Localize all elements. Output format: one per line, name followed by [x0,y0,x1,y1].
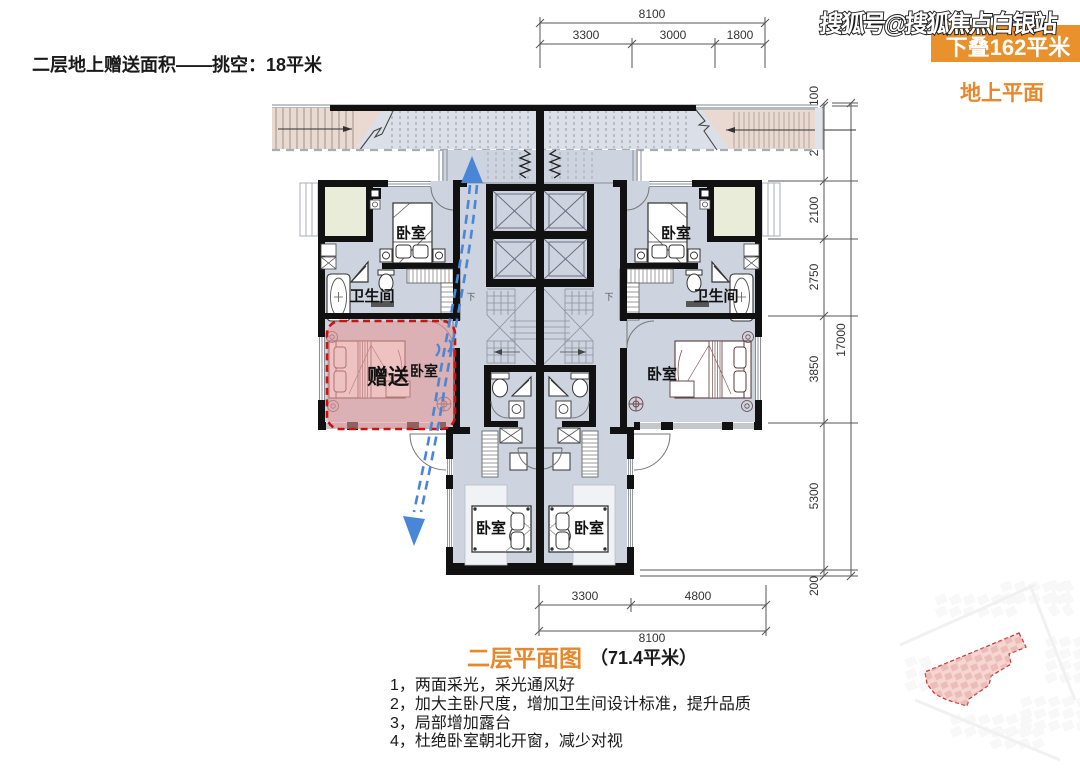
svg-text:地上平面: 地上平面 [960,81,1044,105]
svg-text:卧室: 卧室 [410,363,438,379]
svg-text:二层平面图: 二层平面图 [467,645,582,671]
svg-text:8100: 8100 [639,631,666,645]
svg-text:（71.4平米）: （71.4平米） [590,647,697,668]
svg-text:卫生间: 卫生间 [693,287,738,305]
svg-text:200: 200 [807,576,821,596]
svg-text:5300: 5300 [807,482,821,509]
svg-text:100: 100 [807,86,821,106]
svg-text:卧室: 卧室 [661,224,691,242]
svg-text:下: 下 [466,292,475,302]
svg-text:1，两面采光，采光通风好: 1，两面采光，采光通风好 [390,676,575,694]
svg-text:3300: 3300 [572,589,599,603]
svg-text:3，局部增加露台: 3，局部增加露台 [390,714,511,732]
svg-text:4800: 4800 [685,589,712,603]
svg-text:3300: 3300 [573,28,600,42]
svg-text:1800: 1800 [727,28,754,42]
svg-text:4，杜绝卧室朝北开窗，减少对视: 4，杜绝卧室朝北开窗，减少对视 [390,732,623,750]
svg-text:搜狐号@搜狐焦点白银站: 搜狐号@搜狐焦点白银站 [819,10,1059,38]
svg-text:下叠162平米: 下叠162平米 [946,35,1072,60]
svg-text:3000: 3000 [660,28,687,42]
svg-text:卫生间: 卫生间 [349,287,394,305]
svg-text:二层地上赠送面积——挑空：18平米: 二层地上赠送面积——挑空：18平米 [32,54,323,75]
svg-text:卧室: 卧室 [476,519,506,537]
svg-text:17000: 17000 [834,323,848,357]
svg-text:2，加大主卧尺度，增加卫生间设计标准，提升品质: 2，加大主卧尺度，增加卫生间设计标准，提升品质 [390,695,751,713]
svg-text:2750: 2750 [807,263,821,290]
svg-text:赠送: 赠送 [367,365,410,389]
svg-text:卧室: 卧室 [647,365,677,383]
svg-text:下: 下 [604,292,613,302]
svg-text:卧室: 卧室 [396,224,426,242]
svg-text:8100: 8100 [639,7,666,21]
svg-text:3850: 3850 [807,355,821,382]
svg-text:2100: 2100 [807,196,821,223]
svg-text:卧室: 卧室 [574,519,604,537]
